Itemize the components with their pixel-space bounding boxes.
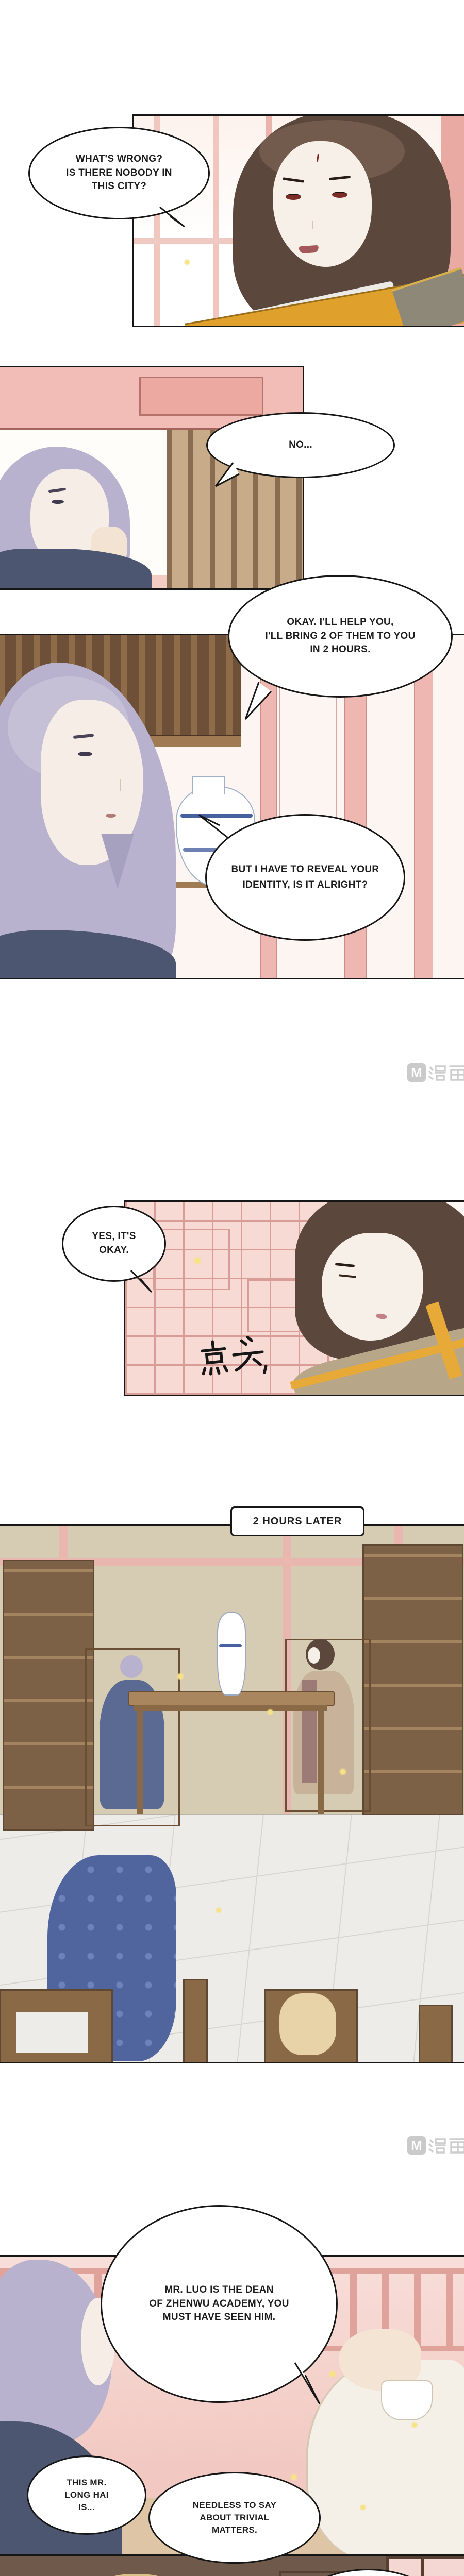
site-watermark: M 漫画岛	[407, 2136, 464, 2155]
panel-2a	[0, 366, 304, 590]
watermark-cjk-glyphs	[428, 2136, 464, 2155]
bubble-tail	[212, 460, 241, 489]
figure-left-hairbun	[120, 1655, 143, 1678]
bubble-line: WHAT'S WRONG?	[76, 152, 162, 166]
right-shelf	[362, 1544, 463, 1815]
bubble-line: ABOUT TRIVIAL	[200, 2512, 269, 2524]
sparkle	[176, 1672, 185, 1681]
feather-fabric	[279, 1993, 336, 2055]
man-nose-line	[120, 779, 121, 791]
eye	[286, 194, 301, 200]
window-mullion	[213, 116, 219, 326]
table-leg	[318, 1711, 324, 1814]
center-table-leg	[183, 1979, 208, 2063]
sparkle	[215, 1907, 222, 1914]
bubble-tail	[155, 205, 188, 230]
left-shelf	[3, 1560, 94, 1831]
watermark-logo: M	[407, 1063, 426, 1082]
window-cross	[421, 2556, 424, 2576]
table-leg	[137, 1711, 143, 1814]
sparkle	[184, 259, 191, 266]
far-right-leg	[419, 2005, 453, 2063]
bubble-tail	[196, 812, 233, 845]
speech-bubble-reveal: BUT I HAVE TO REVEAL YOUR IDENTITY, IS I…	[205, 814, 405, 941]
pink-pillar	[414, 635, 433, 978]
sparkle	[359, 2504, 367, 2511]
bubble-line: BUT I HAVE TO REVEAL YOUR	[231, 862, 379, 877]
bubble-line: NO...	[289, 438, 312, 452]
man-mouth	[106, 814, 116, 818]
bubble-tail	[127, 1267, 155, 1295]
watermark-cjk-glyphs	[428, 1063, 464, 1082]
bubble-tail	[289, 2360, 325, 2407]
left-stool-cutout	[16, 2012, 88, 2053]
bubble-line: OKAY.	[99, 1244, 129, 1258]
sparkle	[411, 2421, 418, 2429]
bubble-line: THIS MR.	[67, 2477, 106, 2489]
panel-3	[124, 1200, 464, 1396]
bubble-line: I'LL BRING 2 OF THEM TO YOU	[265, 630, 415, 643]
sparkle	[328, 2370, 337, 2378]
bubble-line: OF ZHENWU ACADEMY, YOU	[149, 2297, 289, 2311]
site-watermark: M 漫画岛	[407, 1063, 464, 1082]
vase-blue-band	[219, 1644, 242, 1647]
figure-right-face	[308, 1647, 320, 1664]
sfx-nod: 点头	[198, 1334, 270, 1384]
bubble-line: IS THERE NOBODY IN	[66, 166, 172, 180]
sparkle	[339, 1768, 347, 1776]
watermark-logo: M	[407, 2136, 426, 2155]
bubble-line: NEEDLESS TO SAY	[193, 2499, 276, 2512]
sparkle	[290, 2473, 298, 2481]
speech-bubble-needless: NEEDLESS TO SAY ABOUT TRIVIAL MATTERS.	[148, 2472, 321, 2564]
vase-neck	[192, 776, 225, 794]
bubble-line: IDENTITY, IS IT ALRIGHT?	[243, 877, 368, 893]
sfx-nod-glyphs	[198, 1334, 270, 1382]
bubble-line: OKAY. I'LL HELP YOU,	[287, 616, 393, 630]
teacup	[381, 2380, 433, 2420]
beam-inset	[139, 377, 263, 416]
vase-on-table	[217, 1612, 246, 1696]
bubble-line: YES, IT'S	[92, 1230, 136, 1244]
caption-2-hours-later: 2 HOURS LATER	[230, 1506, 364, 1536]
panel-4	[0, 1524, 464, 2063]
bubble-line: IS...	[78, 2501, 95, 2514]
bubble-line: MUST HAVE SEEN HIM.	[163, 2311, 276, 2325]
bubble-line: MR. LUO IS THE DEAN	[164, 2283, 274, 2297]
speech-bubble-long-hai: THIS MR. LONG HAI IS...	[27, 2455, 146, 2535]
caption-text: 2 HOURS LATER	[253, 1516, 342, 1528]
sparkle	[267, 1708, 274, 1716]
comic-page: M 漫画岛 点头	[0, 0, 464, 2576]
table-apron	[134, 1705, 327, 1711]
bubble-tail	[242, 679, 274, 722]
bubble-line: MATTERS.	[212, 2524, 257, 2536]
sparkle	[193, 1256, 202, 1265]
bubble-line: THIS CITY?	[92, 180, 146, 194]
eye	[332, 192, 347, 198]
nose-line	[312, 221, 313, 229]
bubble-line: LONG HAI	[64, 2489, 109, 2501]
bubble-line: IN 2 HOURS.	[310, 643, 370, 657]
